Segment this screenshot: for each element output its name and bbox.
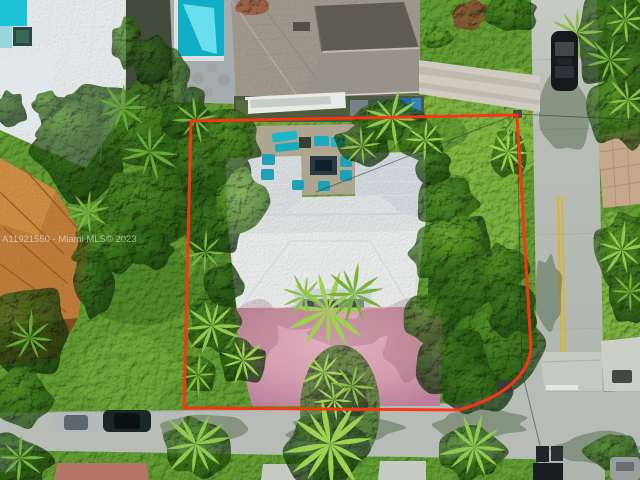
- svg-text:A11921550 - Miami MLS© 2023: A11921550 - Miami MLS© 2023: [2, 234, 137, 245]
